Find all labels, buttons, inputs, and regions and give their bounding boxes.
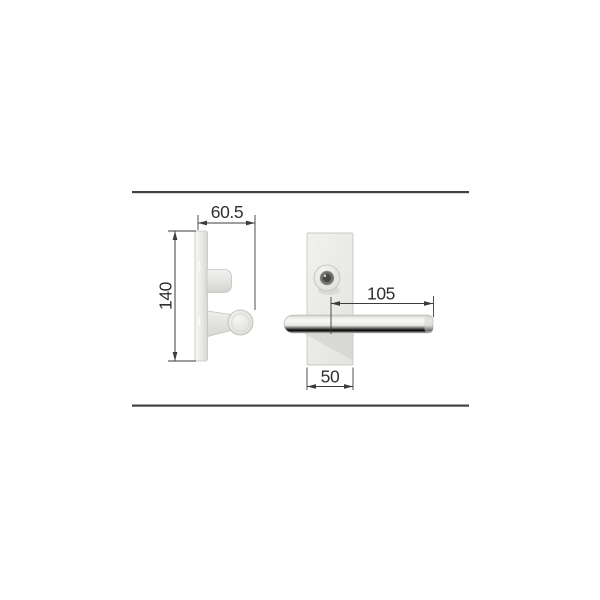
spindle-hub-side-profile <box>207 270 232 293</box>
arrow-right-icon <box>344 384 353 389</box>
arrow-right-icon <box>246 221 255 226</box>
lever-handle-side-view <box>195 231 253 361</box>
dimension-label: 60.5 <box>211 202 243 222</box>
separator-line-top <box>132 191 469 193</box>
screw-highlight <box>324 275 327 278</box>
lever-bar <box>284 315 433 333</box>
lever-neck-side-profile <box>208 311 232 337</box>
separator-line-bottom <box>132 405 469 407</box>
dimension-plate-height: 140 <box>156 231 197 361</box>
arrow-left-icon <box>198 221 207 226</box>
technical-drawing-svg: 60.5 140 105 50 <box>0 0 600 600</box>
backplate-side-profile <box>195 231 208 361</box>
dimension-label: 105 <box>367 284 395 304</box>
arrow-up-icon <box>173 231 178 240</box>
arrow-right-icon <box>424 301 433 306</box>
dimension-label: 140 <box>156 281 176 310</box>
plate-screw-mark-top <box>199 262 201 271</box>
dimension-label: 50 <box>321 367 340 387</box>
arrow-down-icon <box>173 352 178 361</box>
separator-lines <box>132 191 469 407</box>
plate-screw-mark-bottom <box>199 317 201 326</box>
arrow-left-icon <box>307 384 316 389</box>
diagram-canvas: 60.5 140 105 50 <box>0 0 600 600</box>
dimension-plate-width: 50 <box>307 367 353 391</box>
lever-handle-front-view <box>284 233 433 365</box>
lever-bar-end-shading <box>425 315 433 332</box>
